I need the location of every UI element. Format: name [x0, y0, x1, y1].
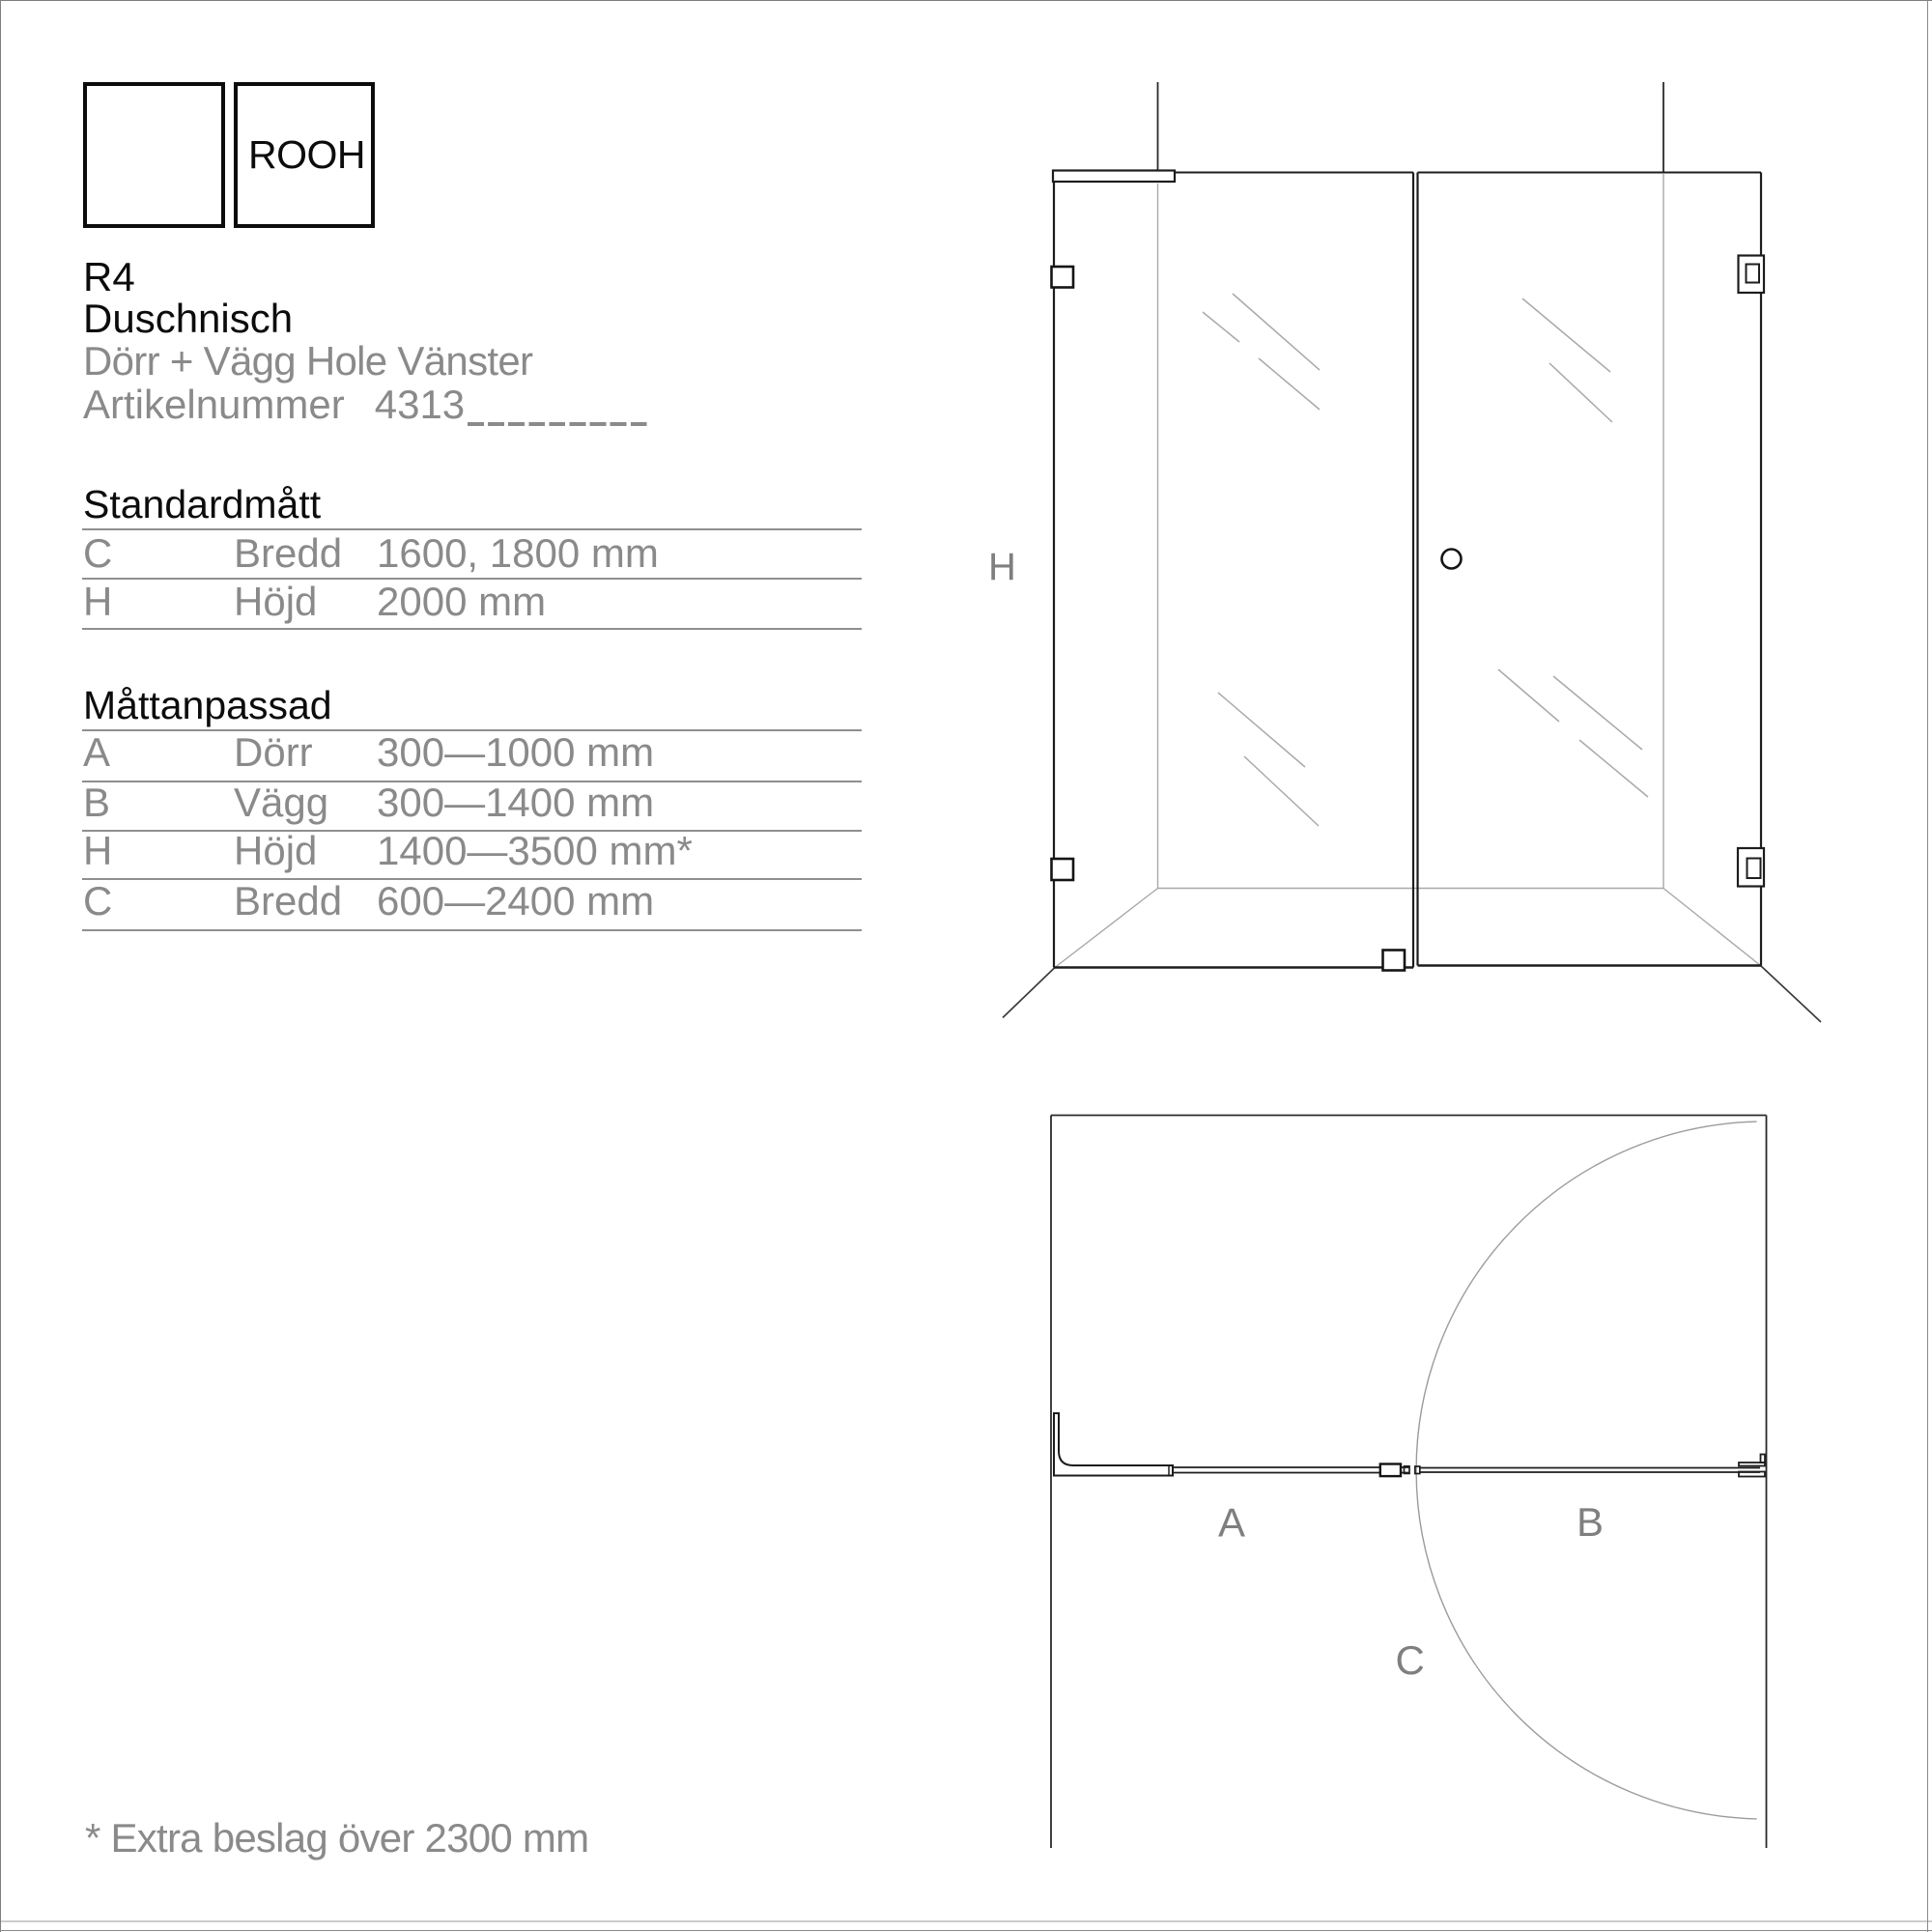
svg-text:C: C	[1396, 1637, 1425, 1683]
svg-text:B: B	[1577, 1499, 1604, 1545]
svg-text:H: H	[988, 546, 1016, 588]
svg-text:A: A	[1218, 1500, 1245, 1546]
